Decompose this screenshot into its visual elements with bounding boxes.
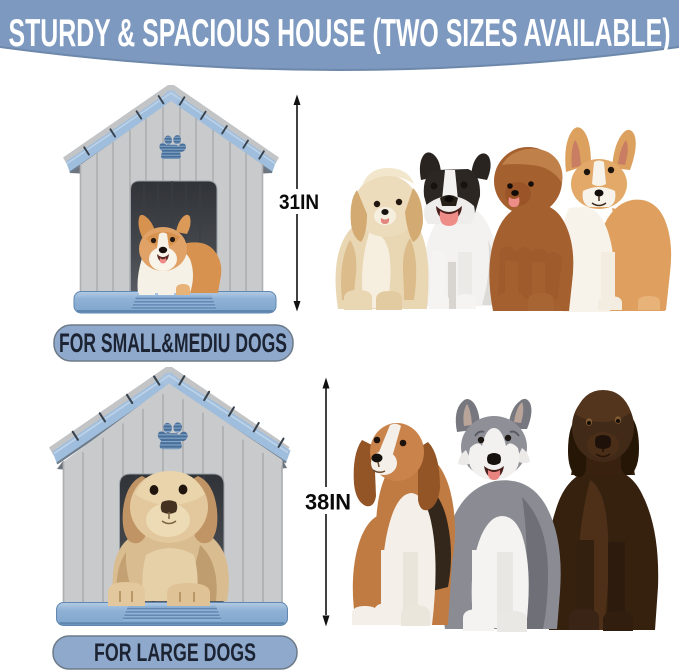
svg-text:38IN: 38IN — [305, 490, 351, 515]
svg-text:FOR LARGE DOGS: FOR LARGE DOGS — [94, 639, 256, 667]
svg-text:FOR SMALL&MEDIU DOGS: FOR SMALL&MEDIU DOGS — [59, 328, 287, 358]
svg-text:STURDY & SPACIOUS HOUSE (TWO S: STURDY & SPACIOUS HOUSE (TWO SIZES AVAIL… — [9, 12, 671, 55]
svg-text:31IN: 31IN — [279, 191, 319, 214]
